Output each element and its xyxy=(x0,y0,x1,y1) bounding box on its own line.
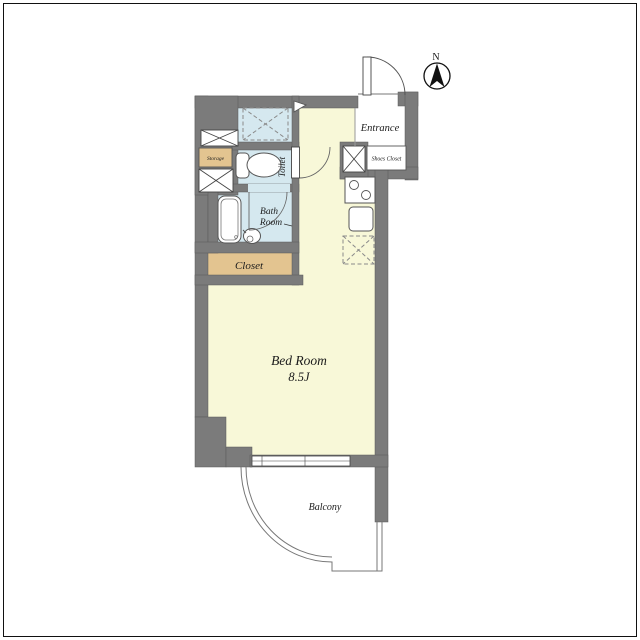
toilet-label: Toilet xyxy=(277,156,287,177)
wall-laundry-toilet xyxy=(232,142,299,150)
bathtub xyxy=(218,196,241,243)
meter-box-top xyxy=(201,130,238,146)
bedroom-floor xyxy=(206,280,377,457)
kitchen-sink xyxy=(349,207,373,231)
wash-basin xyxy=(243,229,261,244)
bedroom-size-label: 8.5J xyxy=(288,370,311,384)
bath-doorway xyxy=(248,184,290,192)
compass-label: N xyxy=(432,52,439,63)
north-compass: N xyxy=(424,52,450,89)
wall-right xyxy=(375,167,388,522)
balcony-rail xyxy=(241,467,382,571)
bedroom-label: Bed Room xyxy=(271,353,327,368)
storage-label: Storage xyxy=(207,156,225,162)
wall-bottom-left xyxy=(226,447,252,467)
balcony-window xyxy=(252,456,350,466)
entrance-door xyxy=(363,57,405,95)
stove xyxy=(345,177,375,203)
shoe-meter-box xyxy=(343,146,365,172)
balcony-label: Balcony xyxy=(309,502,342,513)
bathroom-label-line2: Room xyxy=(259,218,282,228)
wall-step-block xyxy=(195,417,226,467)
meter-box-bottom xyxy=(199,169,233,192)
floor-plan-canvas: N Entrance Shoes Closet Storage Toilet B… xyxy=(0,0,640,640)
wall-spine xyxy=(292,96,299,285)
closet-label: Closet xyxy=(235,260,264,272)
wall-bath-bottom xyxy=(195,242,299,253)
shoes-closet-label: Shoes Closet xyxy=(372,157,402,163)
toilet-fixture xyxy=(236,153,281,178)
wall-closet-bottom xyxy=(195,275,303,285)
entrance-label: Entrance xyxy=(360,123,400,134)
bathroom-label-line1: Bath xyxy=(260,207,278,217)
floor-plan: N Entrance Shoes Closet Storage Toilet B… xyxy=(0,0,640,640)
